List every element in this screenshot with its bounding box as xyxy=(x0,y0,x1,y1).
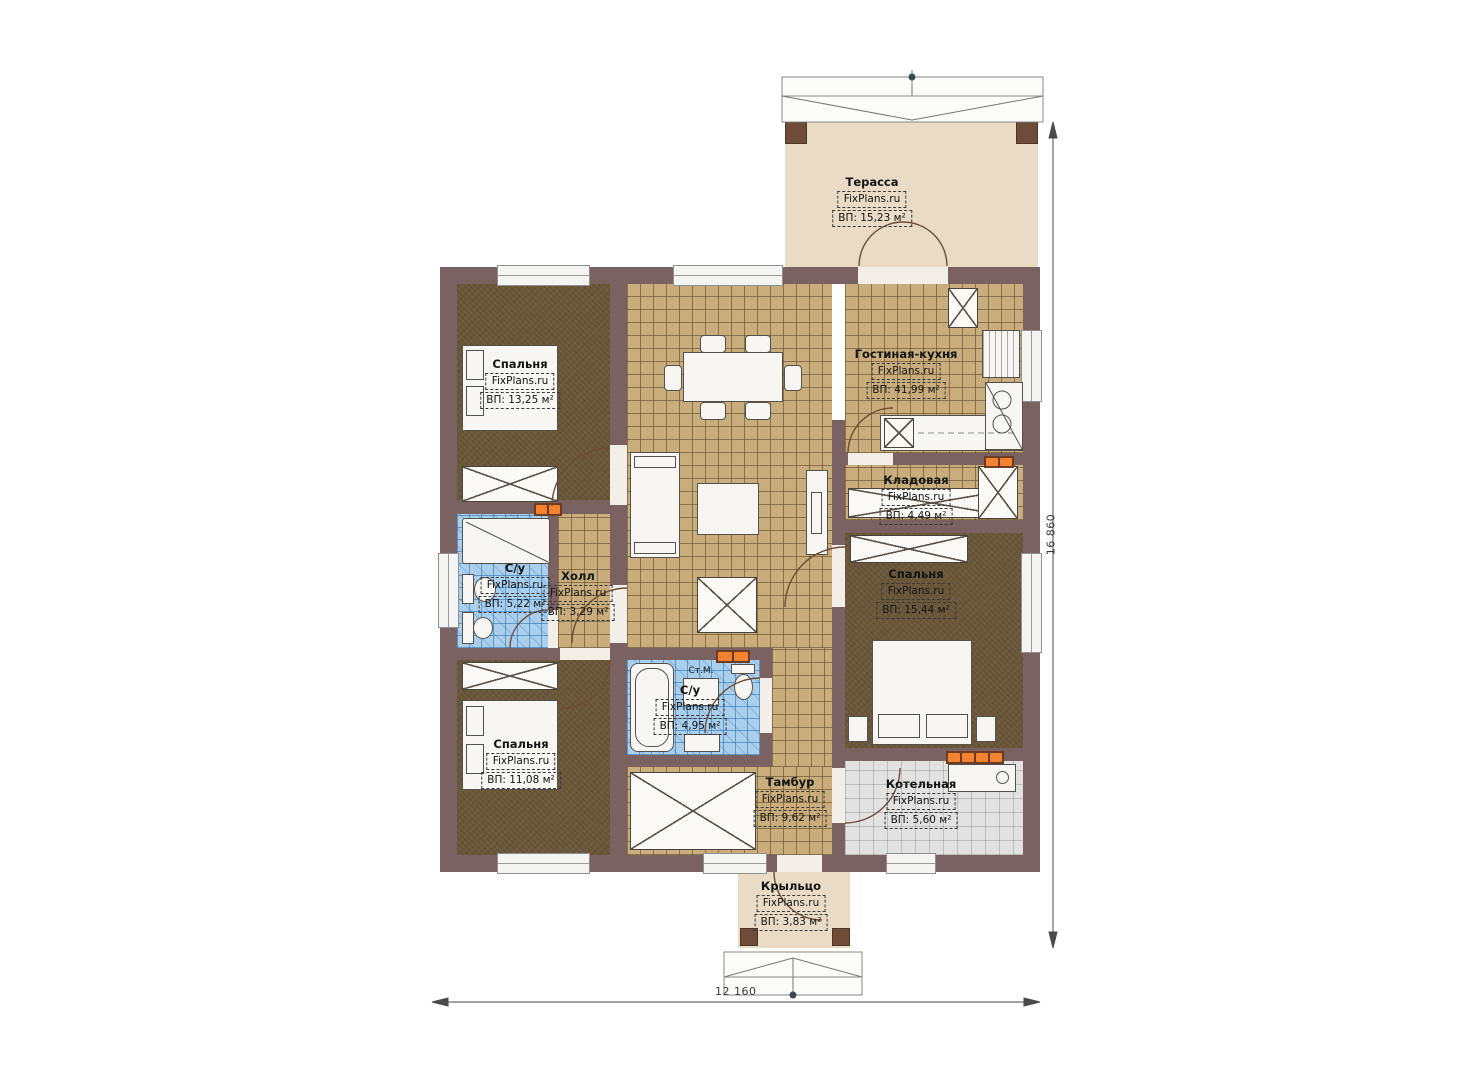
room-label-bathroom-1: С/у FixPlans.ru ВП: 5,22 м² xyxy=(479,562,552,613)
room-name: Холл xyxy=(561,570,595,583)
window-top-bedroom1 xyxy=(497,265,590,286)
terrace-door-opening xyxy=(858,267,948,284)
coffee-table xyxy=(697,483,759,535)
porch-post-right xyxy=(832,928,850,946)
wardrobe-bedroom3 xyxy=(462,662,558,690)
room-brand: FixPlans.ru xyxy=(838,191,907,208)
window-bottom-vestibule xyxy=(703,853,767,874)
room-area: ВП: 5,60 м² xyxy=(885,812,958,829)
door-gap-bedroom3 xyxy=(560,648,610,660)
room-brand: FixPlans.ru xyxy=(656,699,725,716)
room-name: Котельная xyxy=(886,778,957,791)
room-area: ВП: 15,23 м² xyxy=(832,210,912,227)
terrace-post-right xyxy=(1016,122,1038,144)
terrace-roof-outline xyxy=(782,70,1043,122)
dining-chair xyxy=(664,365,682,391)
room-name: Гостиная-кухня xyxy=(855,348,958,361)
room-area: ВП: 3,83 м² xyxy=(755,914,828,931)
room-area: ВП: 4,95 м² xyxy=(654,718,727,735)
dining-chair xyxy=(745,335,771,353)
dining-chair xyxy=(700,335,726,353)
window-bottom-bedroom3 xyxy=(497,853,590,874)
toilet-tank xyxy=(462,574,474,604)
room-name: Спальня xyxy=(492,358,547,371)
roof-node-dot xyxy=(909,74,916,81)
radiator xyxy=(984,456,1014,468)
toilet-tank xyxy=(731,664,755,674)
room-name: Спальня xyxy=(888,568,943,581)
room-label-porch: Крыльцо FixPlans.ru ВП: 3,83 м² xyxy=(755,880,828,931)
room-name: Крыльцо xyxy=(761,880,821,893)
floor-plan-canvas: Терасса FixPlans.ru ВП: 15,23 м² Спальня… xyxy=(0,0,1474,1080)
door-gap-bedroom1 xyxy=(610,445,627,505)
toilet-bowl xyxy=(734,674,753,700)
boiler-dial xyxy=(996,771,1009,784)
room-label-bedroom-3: Спальня FixPlans.ru ВП: 11,08 м² xyxy=(481,738,561,789)
dining-table xyxy=(683,352,783,402)
room-brand: FixPlans.ru xyxy=(486,373,555,390)
window-right-bedroom2 xyxy=(1021,553,1042,653)
room-label-vestibule: Тамбур FixPlans.ru ВП: 9,62 м² xyxy=(754,776,827,827)
wardrobe-bedroom2 xyxy=(850,535,968,563)
door-gap-bathroom2 xyxy=(760,678,772,733)
window-bottom-boiler xyxy=(886,853,936,874)
room-name: Тамбур xyxy=(766,776,815,789)
washbasin xyxy=(473,617,493,639)
room-area: ВП: 5,22 м² xyxy=(479,596,552,613)
dimension-height: 16 860 xyxy=(1044,514,1057,556)
room-brand: FixPlans.ru xyxy=(756,791,825,808)
wardrobe-bedroom1 xyxy=(462,466,558,502)
radiator xyxy=(534,503,562,516)
shower-tray xyxy=(462,518,550,564)
tv xyxy=(811,492,822,534)
room-name: С/у xyxy=(505,562,525,575)
room-area: ВП: 4,49 м² xyxy=(880,508,953,525)
pillow xyxy=(878,714,920,738)
door-gap-bedroom2 xyxy=(832,545,845,607)
wardrobe-vestibule xyxy=(630,772,756,850)
shelving-pantry-side xyxy=(978,466,1018,519)
room-label-boiler-room: Котельная FixPlans.ru ВП: 5,60 м² xyxy=(885,778,958,829)
room-brand: FixPlans.ru xyxy=(882,583,951,600)
nightstand xyxy=(976,716,996,742)
room-label-terrace: Терасса FixPlans.ru ВП: 15,23 м² xyxy=(832,176,912,227)
nightstand xyxy=(848,716,868,742)
corridor-floor xyxy=(772,648,832,767)
dining-chair xyxy=(745,402,771,420)
room-label-living-kitchen: Гостиная-кухня FixPlans.ru ВП: 41,99 м² xyxy=(855,348,958,399)
room-name: Спальня xyxy=(493,738,548,751)
porch-door-opening xyxy=(777,855,822,872)
dimension-width: 12 160 xyxy=(715,985,757,998)
room-label-bedroom-2: Спальня FixPlans.ru ВП: 15,44 м² xyxy=(876,568,956,619)
cabinet-living xyxy=(697,577,757,633)
room-name: Кладовая xyxy=(883,474,948,487)
pillow xyxy=(926,714,968,738)
window-left-bathroom1 xyxy=(438,553,459,628)
window-right-kitchen xyxy=(1021,330,1042,402)
room-area: ВП: 9,62 м² xyxy=(754,810,827,827)
room-area: ВП: 13,25 м² xyxy=(480,392,560,409)
room-brand: FixPlans.ru xyxy=(481,577,550,594)
room-name: Терасса xyxy=(845,176,898,189)
room-label-hall: Холл FixPlans.ru ВП: 3,29 м² xyxy=(542,570,615,621)
room-brand: FixPlans.ru xyxy=(487,753,556,770)
room-label-bathroom-2: С/у FixPlans.ru ВП: 4,95 м² xyxy=(654,684,727,735)
door-gap-boiler xyxy=(832,768,845,823)
radiator xyxy=(716,650,750,663)
terrace-post-left xyxy=(785,122,807,144)
roof-node-dot xyxy=(790,992,797,999)
room-brand: FixPlans.ru xyxy=(882,489,951,506)
room-brand: FixPlans.ru xyxy=(544,585,613,602)
dining-chair xyxy=(700,402,726,420)
interior-wall-bath2-vestibule xyxy=(627,755,772,767)
room-label-pantry: Кладовая FixPlans.ru ВП: 4,49 м² xyxy=(880,474,953,525)
kitchen-sink-cabinet xyxy=(884,418,914,448)
room-label-bedroom-1: Спальня FixPlans.ru ВП: 13,25 м² xyxy=(480,358,560,409)
pillow xyxy=(466,706,484,736)
radiator xyxy=(946,751,1004,764)
interior-wall-living-bath2 xyxy=(627,648,772,660)
dining-chair xyxy=(784,365,802,391)
fridge xyxy=(982,330,1020,378)
window-top-living xyxy=(673,265,783,286)
room-name: С/у xyxy=(680,684,700,697)
room-area: ВП: 41,99 м² xyxy=(866,382,946,399)
kitchen-corner-cabinet xyxy=(948,288,978,328)
room-brand: FixPlans.ru xyxy=(872,363,941,380)
sofa-armrest xyxy=(634,542,676,554)
interior-wall-bedroom3-vestibule xyxy=(610,648,627,855)
room-area: ВП: 3,29 м² xyxy=(542,604,615,621)
room-area: ВП: 15,44 м² xyxy=(876,602,956,619)
room-brand: FixPlans.ru xyxy=(757,895,826,912)
kitchen-corner-sink-unit xyxy=(985,382,1023,450)
room-area: ВП: 11,08 м² xyxy=(481,772,561,789)
room-brand: FixPlans.ru xyxy=(887,793,956,810)
washing-machine-label: Ст.М. xyxy=(688,666,713,676)
washbasin xyxy=(684,734,720,752)
sofa-armrest xyxy=(634,456,676,468)
door-gap-pantry xyxy=(848,453,893,465)
